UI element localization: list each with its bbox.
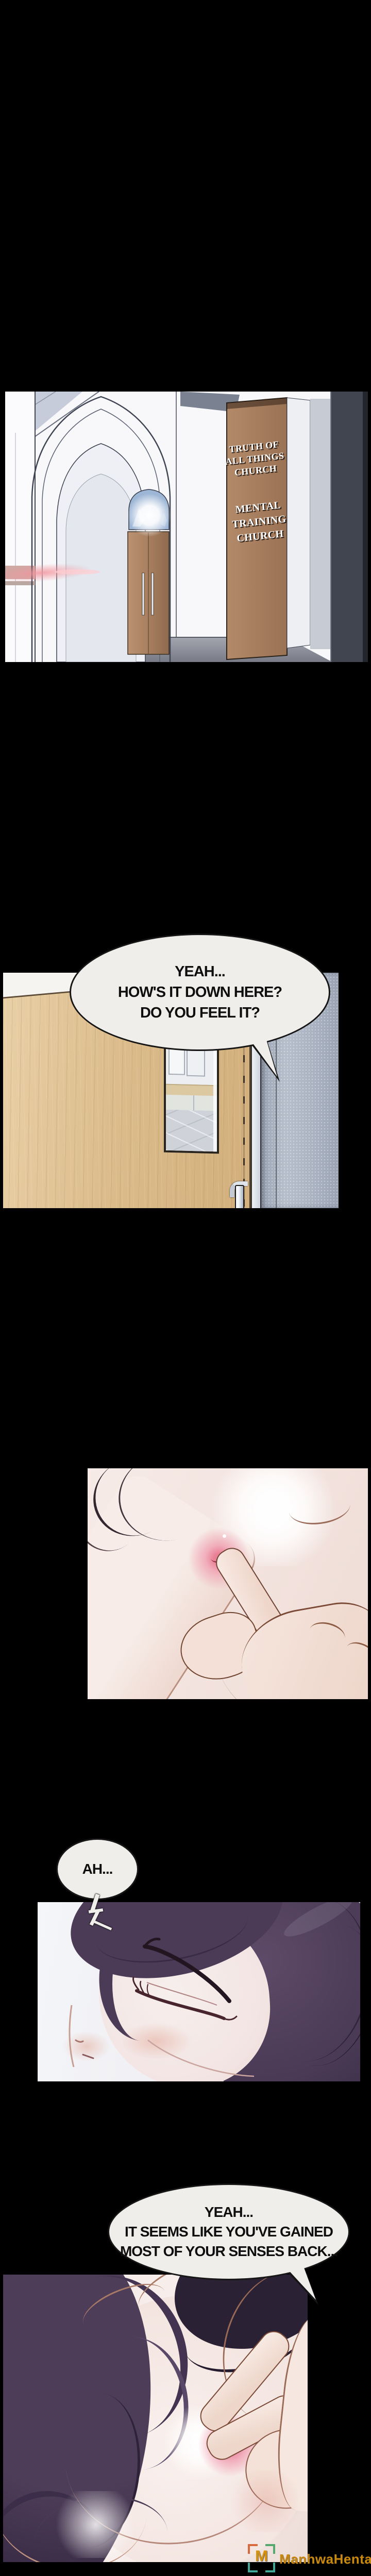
wall-edge-shadow [363, 392, 368, 662]
window-glare [213, 1044, 217, 1151]
eyelash [133, 1977, 139, 1990]
sign-block-bottom: MENTAL TRAINING CHURCH [227, 497, 291, 547]
watermark-logo-letter: M [248, 2548, 275, 2565]
eyelid-crease [147, 1982, 217, 2005]
bubble-zigzag-tail [87, 1894, 117, 1937]
bubble-line: YEAH... [205, 2202, 253, 2222]
bubble-line: MOST OF YOUR SENSES BACK... [120, 2242, 338, 2261]
window-view-wall [166, 1095, 217, 1111]
panel-woman-face [38, 1902, 360, 2081]
left-pillar [5, 392, 35, 662]
panel-bed-scene [3, 2275, 308, 2562]
eyebrow-flick [145, 1939, 159, 1946]
soft-flare [49, 2491, 142, 2558]
speech-bubble-ah: AH... [56, 1838, 139, 1900]
sign-block-top: TRUTH OF ALL THINGS CHURCH [223, 438, 286, 480]
bubble-line: HOW'S IT DOWN HERE? [118, 982, 282, 1003]
hand-blush [225, 2470, 307, 2532]
webtoon-page: TRUTH OF ALL THINGS CHURCH MENTAL TRAINI… [0, 0, 371, 2576]
bubble-line: YEAH... [175, 961, 225, 982]
door-handle-left [142, 573, 144, 615]
door-handle-bar [235, 1185, 244, 1208]
watermark-site-name: ManhwaHentai [279, 2551, 371, 2567]
window-view-floor [166, 1110, 217, 1152]
face-line-art [38, 1902, 360, 2081]
bubble-line: AH... [82, 1861, 113, 1877]
eyebrow [145, 1946, 229, 2001]
watermark-logo: M [248, 2544, 275, 2572]
cheek-blush-2 [120, 2023, 192, 2060]
church-line-art [5, 392, 368, 662]
panel-closeup-chest [88, 1468, 368, 1699]
bubble-line: DO YOU FEEL IT? [140, 1003, 260, 1023]
sign-side-panel [287, 398, 310, 648]
door-window [164, 1041, 219, 1154]
bubble-line: IT SEEMS LIKE YOU'VE GAINED [125, 2222, 333, 2242]
right-wall-light [310, 399, 331, 649]
sparkle [223, 1534, 226, 1538]
door-handle-right [151, 573, 154, 615]
lash-tail [224, 2016, 237, 2020]
light-flare [128, 494, 171, 537]
panel-church-entrance: TRUTH OF ALL THINGS CHURCH MENTAL TRAINI… [5, 392, 368, 662]
right-wall-dark [331, 392, 368, 662]
speech-bubble-door: YEAH... HOW'S IT DOWN HERE? DO YOU FEEL … [70, 934, 330, 1051]
speech-bubble-senses: YEAH... IT SEEMS LIKE YOU'VE GAINED MOST… [108, 2183, 350, 2280]
church-sign-text: TRUTH OF ALL THINGS CHURCH MENTAL TRAINI… [223, 438, 291, 547]
eyelash [147, 1985, 149, 1995]
window-view-corner [193, 1095, 194, 1110]
closed-eye-lash-line [137, 1991, 224, 2019]
pink-flare-streak [55, 569, 100, 574]
